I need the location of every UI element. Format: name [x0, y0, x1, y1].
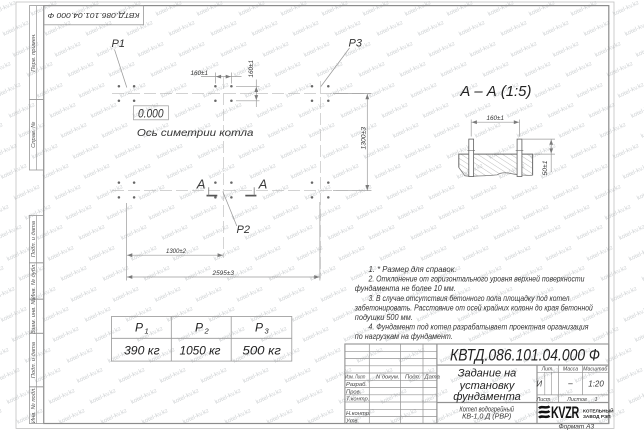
svg-text:КОТЕЛЬНЫЙ: КОТЕЛЬНЫЙ	[583, 407, 614, 414]
svg-text:kotel-kv.kz: kotel-kv.kz	[308, 122, 336, 140]
svg-text:kotel-kv.kz: kotel-kv.kz	[500, 20, 528, 38]
svg-text:kotel-kv.kz: kotel-kv.kz	[112, 286, 140, 304]
svg-text:Н.контр.: Н.контр.	[346, 411, 371, 417]
svg-text:kotel-kv.kz: kotel-kv.kz	[314, 204, 342, 222]
svg-text:kotel-kv.kz: kotel-kv.kz	[195, 286, 223, 304]
svg-text:kotel-kv.kz: kotel-kv.kz	[338, 245, 366, 263]
svg-text:kotel-kv.kz: kotel-kv.kz	[66, 347, 94, 365]
svg-text:kotel-kv.kz: kotel-kv.kz	[89, 388, 117, 406]
svg-text:kotel-kv.kz: kotel-kv.kz	[190, 204, 218, 222]
svg-text:kotel-kv.kz: kotel-kv.kz	[438, 204, 466, 222]
svg-text:kotel-kv.kz: kotel-kv.kz	[586, 245, 614, 263]
svg-text:kotel-kv.kz: kotel-kv.kz	[504, 245, 532, 263]
svg-text:kotel-kv.kz: kotel-kv.kz	[160, 82, 188, 100]
svg-text:kotel-kv.kz: kotel-kv.kz	[630, 102, 644, 120]
svg-text:kotel-kv.kz: kotel-kv.kz	[251, 20, 279, 38]
svg-text:подушки 500 мм.: подушки 500 мм.	[355, 313, 413, 322]
svg-text:Лит.: Лит.	[541, 367, 554, 373]
svg-text:2. Отклонение от горизонтально: 2. Отклонение от горизонтального уровня …	[368, 275, 585, 284]
svg-text:P1: P1	[112, 38, 125, 50]
svg-text:kotel-kv.kz: kotel-kv.kz	[334, 20, 362, 38]
svg-text:kotel-kv.kz: kotel-kv.kz	[565, 61, 593, 79]
svg-text:по нагрузкам на фундамент.: по нагрузкам на фундамент.	[355, 332, 453, 341]
svg-text:1300±2: 1300±2	[166, 248, 186, 255]
svg-text:kotel-kv.kz: kotel-kv.kz	[166, 163, 194, 181]
svg-text:kotel-kv.kz: kotel-kv.kz	[296, 388, 324, 406]
svg-text:kotel-kv.kz: kotel-kv.kz	[415, 163, 443, 181]
svg-text:0.000: 0.000	[138, 108, 164, 120]
svg-text:160±1: 160±1	[248, 60, 255, 78]
svg-text:Т.контр.: Т.контр.	[346, 397, 369, 403]
svg-text:kotel-kv.kz: kotel-kv.kz	[24, 204, 52, 222]
svg-text:kotel-kv.kz: kotel-kv.kz	[356, 347, 384, 365]
svg-text:kotel-kv.kz: kotel-kv.kz	[545, 245, 573, 263]
svg-text:kotel-kv.kz: kotel-kv.kz	[304, 184, 332, 202]
svg-text:kotel-kv.kz: kotel-kv.kz	[421, 388, 449, 406]
svg-text:P3: P3	[255, 321, 270, 336]
svg-text:Масса: Масса	[563, 367, 578, 373]
svg-text:kotel-kv.kz: kotel-kv.kz	[0, 61, 12, 79]
svg-text:kotel-kv.kz: kotel-kv.kz	[88, 245, 116, 263]
svg-text:Котел водогрейный: Котел водогрейный	[459, 406, 514, 414]
svg-text:kotel-kv.kz: kotel-kv.kz	[605, 347, 633, 365]
svg-text:kotel-kv.kz: kotel-kv.kz	[358, 61, 386, 79]
svg-text:Пров.: Пров.	[346, 389, 361, 395]
svg-text:kotel-kv.kz: kotel-kv.kz	[13, 184, 41, 202]
svg-text:kotel-kv.kz: kotel-kv.kz	[570, 0, 598, 18]
svg-text:kotel-kv.kz: kotel-kv.kz	[374, 163, 402, 181]
svg-text:kotel-kv.kz: kotel-kv.kz	[529, 143, 557, 161]
svg-text:kotel-kv.kz: kotel-kv.kz	[493, 224, 521, 242]
svg-text:kotel-kv.kz: kotel-kv.kz	[581, 163, 609, 181]
svg-text:kotel-kv.kz: kotel-kv.kz	[208, 163, 236, 181]
svg-text:kotel-kv.kz: kotel-kv.kz	[623, 306, 644, 324]
svg-text:kotel-kv.kz: kotel-kv.kz	[94, 326, 122, 344]
svg-text:kotel-kv.kz: kotel-kv.kz	[612, 0, 640, 18]
svg-text:kotel-kv.kz: kotel-kv.kz	[267, 122, 295, 140]
svg-text:kotel-kv.kz: kotel-kv.kz	[616, 367, 644, 385]
svg-text:kotel-kv.kz: kotel-kv.kz	[220, 184, 248, 202]
svg-text:kotel-kv.kz: kotel-kv.kz	[482, 61, 510, 79]
svg-text:2595±3: 2595±3	[211, 270, 234, 277]
svg-text:160±1: 160±1	[487, 115, 505, 122]
svg-text:kotel-kv.kz: kotel-kv.kz	[76, 367, 104, 385]
svg-text:kotel-kv.kz: kotel-kv.kz	[148, 204, 176, 222]
svg-text:kotel-kv.kz: kotel-kv.kz	[278, 286, 306, 304]
svg-text:kotel-kv.kz: kotel-kv.kz	[108, 61, 136, 79]
svg-text:kotel-kv.kz: kotel-kv.kz	[534, 224, 562, 242]
svg-text:kotel-kv.kz: kotel-kv.kz	[433, 122, 461, 140]
svg-text:kotel-kv.kz: kotel-kv.kz	[0, 163, 28, 181]
svg-text:kotel-kv.kz: kotel-kv.kz	[446, 0, 474, 18]
svg-text:kotel-kv.kz: kotel-kv.kz	[54, 184, 82, 202]
svg-text:kotel-kv.kz: kotel-kv.kz	[208, 306, 236, 324]
svg-text:kotel-kv.kz: kotel-kv.kz	[174, 102, 202, 120]
svg-text:Утв.: Утв.	[345, 418, 359, 424]
svg-text:kotel-kv.kz: kotel-kv.kz	[274, 61, 302, 79]
svg-text:kotel-kv.kz: kotel-kv.kz	[622, 163, 644, 181]
svg-text:kotel-kv.kz: kotel-kv.kz	[130, 245, 158, 263]
svg-text:kotel-kv.kz: kotel-kv.kz	[592, 326, 620, 344]
svg-text:kotel-kv.kz: kotel-kv.kz	[102, 265, 130, 283]
svg-text:kotel-kv.kz: kotel-kv.kz	[119, 82, 147, 100]
svg-text:kotel-kv.kz: kotel-kv.kz	[0, 286, 16, 304]
svg-text:kotel-kv.kz: kotel-kv.kz	[576, 224, 604, 242]
svg-text:kotel-kv.kz: kotel-kv.kz	[624, 20, 644, 38]
svg-text:kotel-kv.kz: kotel-kv.kz	[428, 41, 456, 59]
svg-text:kotel-kv.kz: kotel-kv.kz	[218, 326, 246, 344]
svg-text:kotel-kv.kz: kotel-kv.kz	[202, 82, 230, 100]
svg-text:kotel-kv.kz: kotel-kv.kz	[587, 388, 615, 406]
svg-text:kotel-kv.kz: kotel-kv.kz	[213, 245, 241, 263]
svg-text:1300±3: 1300±3	[361, 127, 368, 150]
svg-text:kotel-kv.kz: kotel-kv.kz	[47, 245, 75, 263]
svg-text:kotel-kv.kz: kotel-kv.kz	[197, 143, 225, 161]
svg-text:N докум.: N докум.	[376, 375, 399, 381]
svg-text:kotel-kv.kz: kotel-kv.kz	[399, 61, 427, 79]
svg-text:ЗАВОД РЭП: ЗАВОД РЭП	[583, 414, 611, 419]
svg-text:kotel-kv.kz: kotel-kv.kz	[368, 82, 396, 100]
svg-text:kotel-kv.kz: kotel-kv.kz	[552, 184, 580, 202]
svg-text:kotel-kv.kz: kotel-kv.kz	[280, 0, 308, 18]
svg-text:kotel-kv.kz: kotel-kv.kz	[290, 163, 318, 181]
svg-text:kotel-kv.kz: kotel-kv.kz	[137, 41, 165, 59]
svg-text:kotel-kv.kz: kotel-kv.kz	[0, 367, 21, 385]
svg-text:kotel-kv.kz: kotel-kv.kz	[320, 286, 348, 304]
svg-text:Разраб.: Разраб.	[346, 382, 367, 388]
svg-text:kotel-kv.kz: kotel-kv.kz	[8, 102, 36, 120]
svg-text:kotel-kv.kz: kotel-kv.kz	[568, 286, 596, 304]
svg-text:Подп. и дата: Подп. и дата	[31, 220, 37, 257]
svg-text:kotel-kv.kz: kotel-kv.kz	[0, 265, 5, 283]
svg-text:kotel-kv.kz: kotel-kv.kz	[524, 61, 552, 79]
svg-text:kotel-kv.kz: kotel-kv.kz	[196, 0, 224, 18]
svg-text:kotel-kv.kz: kotel-kv.kz	[238, 0, 266, 18]
svg-text:kotel-kv.kz: kotel-kv.kz	[150, 61, 178, 79]
svg-text:kotel-kv.kz: kotel-kv.kz	[166, 306, 194, 324]
svg-text:kotel-kv.kz: kotel-kv.kz	[178, 41, 206, 59]
svg-text:kotel-kv.kz: kotel-kv.kz	[85, 20, 113, 38]
svg-text:Подп. и дата: Подп. и дата	[31, 341, 37, 378]
svg-text:P3: P3	[349, 38, 363, 50]
svg-text:Задание на: Задание на	[458, 368, 517, 380]
svg-text:kotel-kv.kz: kotel-kv.kz	[345, 184, 373, 202]
svg-text:kotel-kv.kz: kotel-kv.kz	[583, 20, 611, 38]
svg-text:kotel-kv.kz: kotel-kv.kz	[231, 204, 259, 222]
svg-text:kotel-kv.kz: kotel-kv.kz	[309, 265, 337, 283]
svg-text:Листов: Листов	[566, 397, 587, 403]
svg-text:kotel-kv.kz: kotel-kv.kz	[640, 122, 644, 140]
svg-text:kotel-kv.kz: kotel-kv.kz	[511, 184, 539, 202]
svg-text:kotel-kv.kz: kotel-kv.kz	[60, 265, 88, 283]
svg-text:P2: P2	[195, 321, 210, 336]
svg-text:kotel-kv.kz: kotel-kv.kz	[291, 306, 319, 324]
svg-text:kotel-kv.kz: kotel-kv.kz	[379, 245, 407, 263]
svg-text:kotel-kv.kz: kotel-kv.kz	[528, 0, 556, 18]
svg-text:3. В случае отсутствия бетонно: 3. В случае отсутствия бетонного пола пл…	[369, 294, 570, 303]
svg-text:–: –	[567, 379, 573, 388]
svg-text:kotel-kv.kz: kotel-kv.kz	[52, 326, 80, 344]
svg-text:kotel-kv.kz: kotel-kv.kz	[210, 20, 238, 38]
svg-text:390 кг: 390 кг	[124, 346, 160, 358]
svg-text:kotel-kv.kz: kotel-kv.kz	[6, 388, 34, 406]
svg-text:kotel-kv.kz: kotel-kv.kz	[558, 122, 586, 140]
svg-text:kotel-kv.kz: kotel-kv.kz	[24, 347, 52, 365]
svg-text:kotel-kv.kz: kotel-kv.kz	[314, 347, 342, 365]
svg-text:kotel-kv.kz: kotel-kv.kz	[510, 41, 538, 59]
svg-text:kotel-kv.kz: kotel-kv.kz	[547, 102, 575, 120]
svg-text:kotel-kv.kz: kotel-kv.kz	[452, 224, 480, 242]
svg-text:Ось симетрии котла: Ось симетрии котла	[137, 127, 254, 139]
svg-text:kotel-kv.kz: kotel-kv.kz	[6, 245, 34, 263]
svg-text:Изм. Лист: Изм. Лист	[345, 375, 365, 381]
svg-text:kotel-kv.kz: kotel-kv.kz	[254, 245, 282, 263]
svg-text:kotel-kv.kz: kotel-kv.kz	[154, 286, 182, 304]
svg-text:фундамента не более 10 мм.: фундамента не более 10 мм.	[355, 284, 456, 293]
svg-text:Справ. №: Справ. №	[31, 122, 37, 148]
svg-text:kotel-kv.kz: kotel-kv.kz	[84, 306, 112, 324]
svg-text:kotel-kv.kz: kotel-kv.kz	[78, 82, 106, 100]
svg-text:Перв. примен.: Перв. примен.	[31, 33, 37, 72]
svg-text:1:20: 1:20	[588, 379, 604, 388]
svg-text:1: 1	[595, 397, 598, 403]
svg-text:kotel-kv.kz: kotel-kv.kz	[594, 184, 622, 202]
svg-text:500 кг: 500 кг	[243, 346, 282, 358]
svg-text:kotel-kv.kz: kotel-kv.kz	[42, 163, 70, 181]
svg-text:kotel-kv.kz: kotel-kv.kz	[570, 143, 598, 161]
svg-text:kotel-kv.kz: kotel-kv.kz	[606, 61, 634, 79]
svg-text:kotel-kv.kz: kotel-kv.kz	[238, 143, 266, 161]
svg-text:kotel-kv.kz: kotel-kv.kz	[458, 20, 486, 38]
svg-text:kotel-kv.kz: kotel-kv.kz	[286, 224, 314, 242]
svg-text:kotel-kv.kz: kotel-kv.kz	[634, 326, 644, 344]
svg-text:kotel-kv.kz: kotel-kv.kz	[440, 61, 468, 79]
svg-text:kotel-kv.kz: kotel-kv.kz	[54, 41, 82, 59]
svg-text:kotel-kv.kz: kotel-kv.kz	[214, 388, 242, 406]
svg-text:kotel-kv.kz: kotel-kv.kz	[285, 82, 313, 100]
svg-text:kotel-kv.kz: kotel-kv.kz	[610, 286, 638, 304]
svg-text:kotel-kv.kz: kotel-kv.kz	[256, 102, 284, 120]
svg-text:1050 кг: 1050 кг	[180, 346, 221, 358]
svg-text:4. Фундамент под котел разраба: 4. Фундамент под котел разрабатывает про…	[369, 323, 590, 332]
svg-text:Подп.: Подп.	[405, 375, 420, 381]
svg-text:kotel-kv.kz: kotel-kv.kz	[588, 102, 616, 120]
svg-text:КВ-1,0 Д (РВР): КВ-1,0 Д (РВР)	[462, 414, 511, 421]
svg-text:kotel-kv.kz: kotel-kv.kz	[106, 204, 134, 222]
svg-text:kotel-kv.kz: kotel-kv.kz	[42, 306, 70, 324]
svg-text:kotel-kv.kz: kotel-kv.kz	[143, 265, 171, 283]
svg-text:kotel-kv.kz: kotel-kv.kz	[617, 82, 644, 100]
svg-text:kotel-kv.kz: kotel-kv.kz	[215, 102, 243, 120]
svg-text:P1: P1	[135, 321, 149, 336]
svg-text:kotel-kv.kz: kotel-kv.kz	[417, 20, 445, 38]
svg-text:kotel-kv.kz: kotel-kv.kz	[0, 122, 4, 140]
svg-text:160±1: 160±1	[191, 70, 209, 77]
svg-text:kotel-kv.kz: kotel-kv.kz	[268, 265, 296, 283]
svg-text:kotel-kv.kz: kotel-kv.kz	[542, 20, 570, 38]
svg-text:kotel-kv.kz: kotel-kv.kz	[386, 41, 414, 59]
svg-text:КВТД.086.101.04.000 Ф: КВТД.086.101.04.000 Ф	[450, 347, 600, 365]
svg-text:50±1: 50±1	[542, 160, 549, 175]
svg-text:1. * Размер для справок.: 1. * Размер для справок.	[369, 265, 457, 274]
svg-text:kotel-kv.kz: kotel-kv.kz	[0, 143, 18, 161]
svg-text:kotel-kv.kz: kotel-kv.kz	[65, 204, 93, 222]
svg-text:kotel-kv.kz: kotel-kv.kz	[70, 286, 98, 304]
svg-text:kotel-kv.kz: kotel-kv.kz	[159, 367, 187, 385]
svg-text:kotel-kv.kz: kotel-kv.kz	[552, 41, 580, 59]
svg-text:kotel-kv.kz: kotel-kv.kz	[83, 163, 111, 181]
svg-text:kotel-kv.kz: kotel-kv.kz	[303, 41, 331, 59]
svg-text:kotel-kv.kz: kotel-kv.kz	[397, 204, 425, 222]
svg-text:kotel-kv.kz: kotel-kv.kz	[156, 143, 184, 161]
svg-text:kotel-kv.kz: kotel-kv.kz	[90, 102, 118, 120]
svg-text:kotel-kv.kz: kotel-kv.kz	[404, 143, 432, 161]
svg-text:kotel-kv.kz: kotel-kv.kz	[576, 82, 604, 100]
svg-text:kotel-kv.kz: kotel-kv.kz	[298, 102, 326, 120]
svg-text:kotel-kv.kz: kotel-kv.kz	[72, 143, 100, 161]
svg-text:kotel-kv.kz: kotel-kv.kz	[368, 224, 396, 242]
svg-text:kotel-kv.kz: kotel-kv.kz	[487, 0, 515, 18]
svg-text:KVZR: KVZR	[551, 403, 579, 422]
svg-text:kotel-kv.kz: kotel-kv.kz	[380, 388, 408, 406]
svg-text:kotel-kv.kz: kotel-kv.kz	[636, 184, 644, 202]
svg-text:kotel-kv.kz: kotel-kv.kz	[563, 204, 591, 222]
svg-text:kotel-kv.kz: kotel-kv.kz	[516, 122, 544, 140]
svg-text:kotel-kv.kz: kotel-kv.kz	[480, 204, 508, 222]
svg-text:P2: P2	[237, 224, 250, 236]
svg-text:kotel-kv.kz: kotel-kv.kz	[236, 286, 264, 304]
svg-text:kotel-kv.kz: kotel-kv.kz	[126, 20, 154, 38]
svg-text:kotel-kv.kz: kotel-kv.kz	[155, 0, 183, 18]
svg-text:Инв. № подл.: Инв. № подл.	[31, 387, 37, 423]
svg-text:kotel-kv.kz: kotel-kv.kz	[618, 224, 644, 242]
svg-text:kotel-kv.kz: kotel-kv.kz	[220, 41, 248, 59]
svg-text:kotel-kv.kz: kotel-kv.kz	[469, 41, 497, 59]
svg-text:kotel-kv.kz: kotel-kv.kz	[161, 224, 189, 242]
svg-text:kotel-kv.kz: kotel-kv.kz	[48, 388, 76, 406]
svg-text:kotel-kv.kz: kotel-kv.kz	[321, 0, 349, 18]
svg-text:Лист: Лист	[536, 397, 551, 403]
svg-text:Взам. инв. №: Взам. инв. №	[31, 298, 37, 334]
svg-text:А: А	[258, 177, 268, 192]
svg-text:kotel-kv.kz: kotel-kv.kz	[612, 143, 640, 161]
svg-text:kotel-kv.kz: kotel-kv.kz	[322, 143, 350, 161]
svg-text:kotel-kv.kz: kotel-kv.kz	[404, 0, 432, 18]
svg-text:kotel-kv.kz: kotel-kv.kz	[0, 224, 23, 242]
svg-text:kotel-kv.kz: kotel-kv.kz	[101, 122, 129, 140]
svg-text:kotel-kv.kz: kotel-kv.kz	[0, 408, 3, 426]
svg-text:kotel-kv.kz: kotel-kv.kz	[0, 82, 22, 100]
svg-text:Инв. № дубл.: Инв. № дубл.	[31, 263, 37, 299]
svg-text:Формат А3: Формат А3	[559, 423, 595, 430]
svg-text:kotel-kv.kz: kotel-kv.kz	[168, 20, 196, 38]
svg-text:kotel-kv.kz: kotel-kv.kz	[78, 224, 106, 242]
svg-text:Дата: Дата	[424, 375, 441, 381]
svg-text:забетонировать. Расстояние от: забетонировать. Расстояние от осей крайн…	[354, 303, 593, 312]
svg-text:kotel-kv.kz: kotel-kv.kz	[49, 102, 77, 120]
svg-text:kotel-kv.kz: kotel-kv.kz	[332, 163, 360, 181]
svg-text:kotel-kv.kz: kotel-kv.kz	[422, 102, 450, 120]
svg-text:фундамента: фундамента	[453, 391, 521, 403]
svg-text:kotel-kv.kz: kotel-kv.kz	[60, 122, 88, 140]
svg-text:kotel-kv.kz: kotel-kv.kz	[326, 82, 354, 100]
svg-text:kotel-kv.kz: kotel-kv.kz	[316, 61, 344, 79]
svg-text:kotel-kv.kz: kotel-kv.kz	[34, 367, 62, 385]
svg-text:Масштаб: Масштаб	[583, 367, 608, 373]
svg-text:kotel-kv.kz: kotel-kv.kz	[534, 82, 562, 100]
svg-text:kotel-kv.kz: kotel-kv.kz	[420, 245, 448, 263]
svg-text:kotel-kv.kz: kotel-kv.kz	[635, 41, 644, 59]
svg-text:kotel-kv.kz: kotel-kv.kz	[44, 20, 72, 38]
svg-text:kotel-kv.kz: kotel-kv.kz	[522, 204, 550, 222]
svg-text:kotel-kv.kz: kotel-kv.kz	[410, 224, 438, 242]
svg-text:kotel-kv.kz: kotel-kv.kz	[362, 0, 390, 18]
svg-text:kotel-kv.kz: kotel-kv.kz	[398, 347, 426, 365]
svg-text:kotel-kv.kz: kotel-kv.kz	[386, 184, 414, 202]
svg-text:КВТД.086.101.04.000 Ф: КВТД.086.101.04.000 Ф	[48, 11, 140, 20]
svg-text:kotel-kv.kz: kotel-kv.kz	[356, 204, 384, 222]
svg-text:kotel-kv.kz: kotel-kv.kz	[172, 388, 200, 406]
svg-text:kotel-kv.kz: kotel-kv.kz	[284, 367, 312, 385]
svg-text:kotel-kv.kz: kotel-kv.kz	[376, 20, 404, 38]
svg-text:kotel-kv.kz: kotel-kv.kz	[428, 184, 456, 202]
svg-text:kotel-kv.kz: kotel-kv.kz	[138, 184, 166, 202]
svg-text:А: А	[196, 177, 206, 192]
svg-text:kotel-kv.kz: kotel-kv.kz	[0, 347, 10, 365]
svg-text:kotel-kv.kz: kotel-kv.kz	[280, 143, 308, 161]
svg-text:kotel-kv.kz: kotel-kv.kz	[0, 0, 17, 18]
svg-text:А – А (1:5): А – А (1:5)	[459, 83, 531, 100]
svg-text:kotel-kv.kz: kotel-kv.kz	[244, 82, 272, 100]
svg-text:kotel-kv.kz: kotel-kv.kz	[200, 367, 228, 385]
svg-text:kotel-kv.kz: kotel-kv.kz	[327, 224, 355, 242]
svg-text:kotel-kv.kz: kotel-kv.kz	[124, 163, 152, 181]
svg-text:kotel-kv.kz: kotel-kv.kz	[506, 102, 534, 120]
svg-text:kotel-kv.kz: kotel-kv.kz	[184, 265, 212, 283]
svg-text:kotel-kv.kz: kotel-kv.kz	[381, 102, 409, 120]
svg-text:И: И	[536, 379, 542, 388]
svg-text:kotel-kv.kz: kotel-kv.kz	[599, 122, 627, 140]
svg-text:kotel-kv.kz: kotel-kv.kz	[242, 367, 270, 385]
svg-text:kotel-kv.kz: kotel-kv.kz	[96, 184, 124, 202]
svg-text:kotel-kv.kz: kotel-kv.kz	[262, 41, 290, 59]
svg-text:kotel-kv.kz: kotel-kv.kz	[340, 102, 368, 120]
svg-text:kotel-kv.kz: kotel-kv.kz	[474, 122, 502, 140]
svg-text:kotel-kv.kz: kotel-kv.kz	[392, 122, 420, 140]
svg-text:kotel-kv.kz: kotel-kv.kz	[410, 82, 438, 100]
svg-text:kotel-kv.kz: kotel-kv.kz	[470, 184, 498, 202]
svg-text:kotel-kv.kz: kotel-kv.kz	[628, 245, 644, 263]
svg-text:kotel-kv.kz: kotel-kv.kz	[0, 204, 10, 222]
svg-text:kotel-kv.kz: kotel-kv.kz	[292, 20, 320, 38]
svg-text:kotel-kv.kz: kotel-kv.kz	[36, 82, 64, 100]
svg-text:kotel-kv.kz: kotel-kv.kz	[628, 388, 644, 406]
svg-text:kotel-kv.kz: kotel-kv.kz	[0, 306, 28, 324]
svg-text:kotel-kv.kz: kotel-kv.kz	[130, 388, 158, 406]
svg-text:kotel-kv.kz: kotel-kv.kz	[302, 326, 330, 344]
svg-text:kotel-kv.kz: kotel-kv.kz	[255, 388, 283, 406]
svg-text:kotel-kv.kz: kotel-kv.kz	[114, 143, 142, 161]
svg-text:kotel-kv.kz: kotel-kv.kz	[118, 367, 146, 385]
svg-text:kotel-kv.kz: kotel-kv.kz	[67, 61, 95, 79]
svg-text:kotel-kv.kz: kotel-kv.kz	[462, 245, 490, 263]
svg-text:kotel-kv.kz: kotel-kv.kz	[202, 224, 230, 242]
svg-text:kotel-kv.kz: kotel-kv.kz	[120, 224, 148, 242]
svg-text:kotel-kv.kz: kotel-kv.kz	[594, 41, 622, 59]
svg-text:kotel-kv.kz: kotel-kv.kz	[36, 224, 64, 242]
svg-text:kotel-kv.kz: kotel-kv.kz	[272, 204, 300, 222]
